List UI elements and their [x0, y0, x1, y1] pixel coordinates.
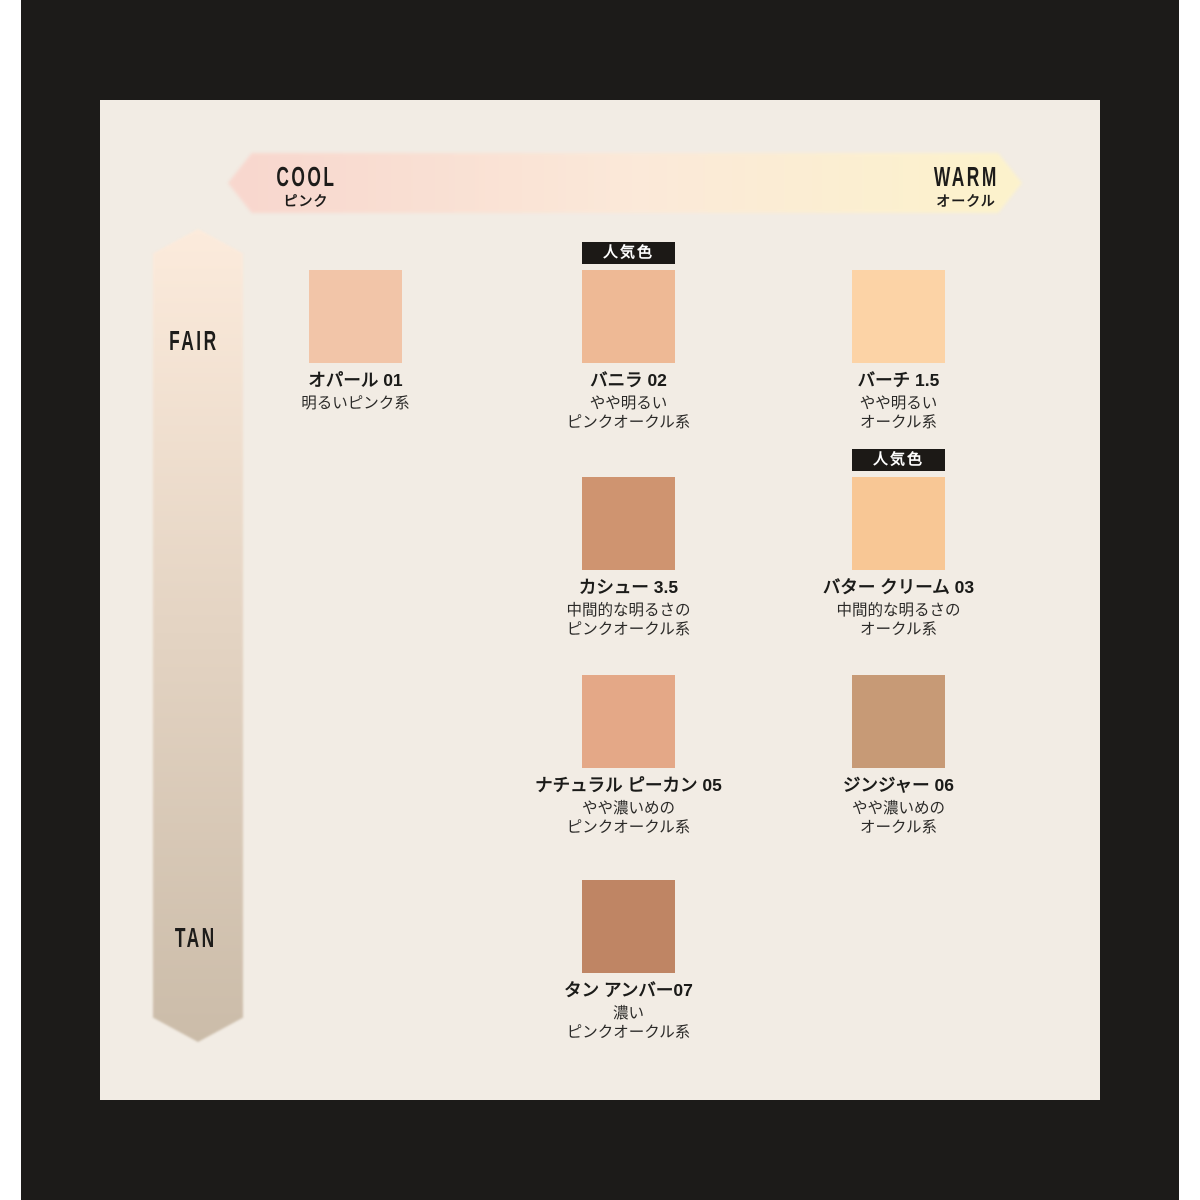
shade-chart-panel: COOL ピンク WARM オークル FAIR TAN オパール 01 — [100, 100, 1100, 1100]
shade-desc: ピンクオークル系 — [479, 620, 779, 639]
shade-card-tan-amber-07: タン アンバー07 濃い ピンクオークル系 — [582, 880, 675, 973]
shade-desc: オークル系 — [749, 818, 1049, 837]
page: COOL ピンク WARM オークル FAIR TAN オパール 01 — [0, 0, 1200, 1200]
shade-name: オパール 01 — [206, 370, 506, 391]
shade-name: バター クリーム 03 — [749, 577, 1049, 598]
shade-desc: やや濃いめの — [749, 799, 1049, 818]
shade-card-ginger-06: ジンジャー 06 やや濃いめの オークル系 — [852, 675, 945, 768]
fair-axis-label-block: FAIR — [134, 326, 254, 356]
shade-labels: ナチュラル ピーカン 05 やや濃いめの ピンクオークル系 — [479, 775, 779, 837]
shade-swatch — [852, 675, 945, 768]
shade-desc: 中間的な明るさの — [479, 601, 779, 620]
warm-axis-label-block: WARM オークル — [906, 162, 1026, 209]
popular-badge-label: 人気色 — [603, 242, 654, 264]
shade-swatch — [309, 270, 402, 363]
black-frame: COOL ピンク WARM オークル FAIR TAN オパール 01 — [21, 0, 1179, 1200]
shade-card-birch-1-5: バーチ 1.5 やや明るい オークル系 — [852, 270, 945, 363]
tan-label: TAN — [175, 923, 217, 953]
shade-name: バーチ 1.5 — [749, 370, 1049, 391]
shade-labels: バーチ 1.5 やや明るい オークル系 — [749, 370, 1049, 432]
shade-desc: ピンクオークル系 — [479, 818, 779, 837]
popular-badge: 人気色 — [852, 449, 945, 471]
shade-desc: オークル系 — [749, 620, 1049, 639]
shade-desc: やや明るい — [749, 394, 1049, 413]
tan-axis-label-block: TAN — [136, 923, 256, 953]
shade-labels: バター クリーム 03 中間的な明るさの オークル系 — [749, 577, 1049, 639]
shade-swatch — [582, 477, 675, 570]
shade-labels: ジンジャー 06 やや濃いめの オークル系 — [749, 775, 1049, 837]
shade-desc: 中間的な明るさの — [749, 601, 1049, 620]
cool-axis-label-block: COOL ピンク — [246, 162, 366, 209]
popular-badge-label: 人気色 — [873, 449, 924, 471]
shade-name: ナチュラル ピーカン 05 — [479, 775, 779, 796]
shade-labels: カシュー 3.5 中間的な明るさの ピンクオークル系 — [479, 577, 779, 639]
shade-name: ジンジャー 06 — [749, 775, 1049, 796]
shade-swatch — [852, 477, 945, 570]
shade-labels: バニラ 02 やや明るい ピンクオークル系 — [479, 370, 779, 432]
shade-swatch — [582, 270, 675, 363]
shade-desc: オークル系 — [749, 413, 1049, 432]
shade-card-vanilla-02: 人気色 バニラ 02 やや明るい ピンクオークル系 — [582, 270, 675, 363]
shade-name: バニラ 02 — [479, 370, 779, 391]
warm-sublabel: オークル — [906, 193, 1026, 209]
shade-labels: オパール 01 明るいピンク系 — [206, 370, 506, 413]
shade-desc: 濃い — [479, 1004, 779, 1023]
shade-desc: やや濃いめの — [479, 799, 779, 818]
shade-card-natural-pecan-05: ナチュラル ピーカン 05 やや濃いめの ピンクオークル系 — [582, 675, 675, 768]
shade-card-cashew-3-5: カシュー 3.5 中間的な明るさの ピンクオークル系 — [582, 477, 675, 570]
shade-swatch — [852, 270, 945, 363]
cool-sublabel: ピンク — [246, 193, 366, 209]
shade-desc: ピンクオークル系 — [479, 413, 779, 432]
shade-name: タン アンバー07 — [479, 980, 779, 1001]
shade-swatch — [582, 675, 675, 768]
shade-desc: ピンクオークル系 — [479, 1023, 779, 1042]
popular-badge: 人気色 — [582, 242, 675, 264]
shade-name: カシュー 3.5 — [479, 577, 779, 598]
warm-label: WARM — [934, 162, 999, 192]
shade-desc: 明るいピンク系 — [206, 394, 506, 413]
shade-labels: タン アンバー07 濃い ピンクオークル系 — [479, 980, 779, 1042]
shade-swatch — [582, 880, 675, 973]
shade-card-butter-cream-03: 人気色 バター クリーム 03 中間的な明るさの オークル系 — [852, 477, 945, 570]
shade-desc: やや明るい — [479, 394, 779, 413]
cool-label: COOL — [276, 162, 336, 192]
fair-label: FAIR — [169, 326, 218, 356]
shade-card-opal-01: オパール 01 明るいピンク系 — [309, 270, 402, 363]
